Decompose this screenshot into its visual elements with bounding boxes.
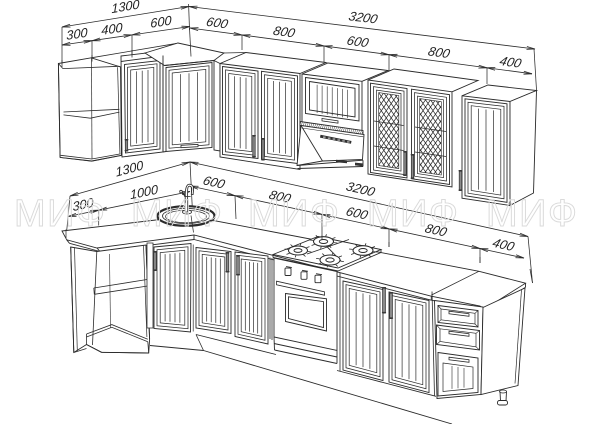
svg-text:МИФ: МИФ (486, 193, 578, 235)
svg-text:МИФ: МИФ (14, 193, 106, 235)
svg-text:МИФ: МИФ (248, 193, 340, 235)
svg-text:МИФ: МИФ (367, 193, 459, 235)
svg-text:МИФ: МИФ (131, 193, 223, 235)
